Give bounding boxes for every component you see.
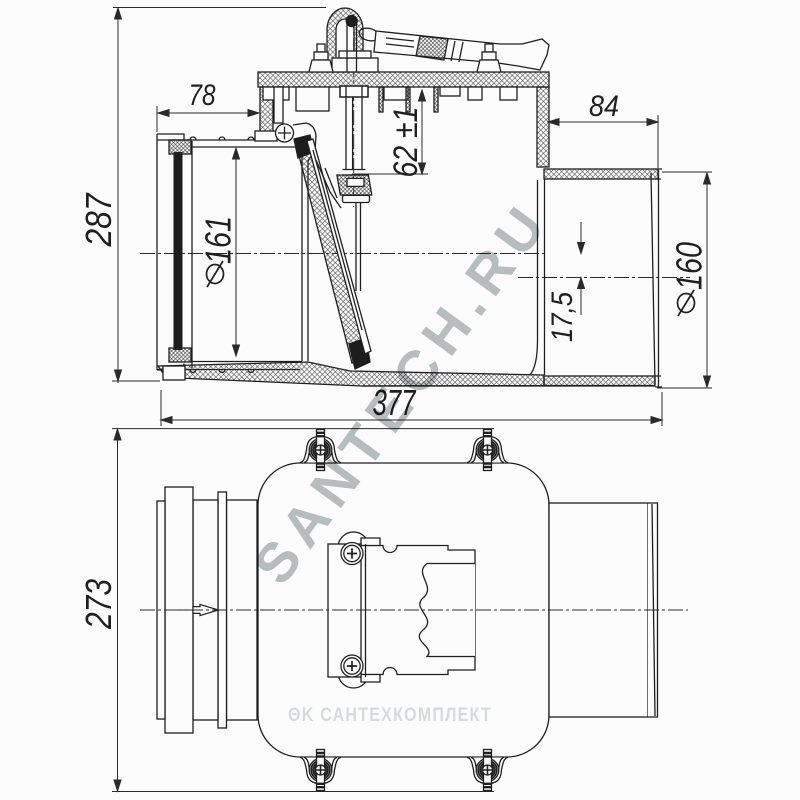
svg-text:160: 160 (669, 242, 710, 290)
svg-text:273: 273 (78, 579, 119, 630)
svg-text:17,5: 17,5 (546, 292, 579, 342)
svg-text:287: 287 (78, 192, 119, 248)
svg-text:78: 78 (189, 79, 216, 112)
svg-text:ΘΚ САНТЕХКОМПЛЕКТ: ΘΚ САНТЕХКОМПЛЕКТ (288, 705, 492, 726)
svg-text:62 ±1: 62 ±1 (387, 107, 425, 178)
svg-text:84: 84 (589, 90, 619, 123)
svg-text:161: 161 (198, 216, 239, 264)
